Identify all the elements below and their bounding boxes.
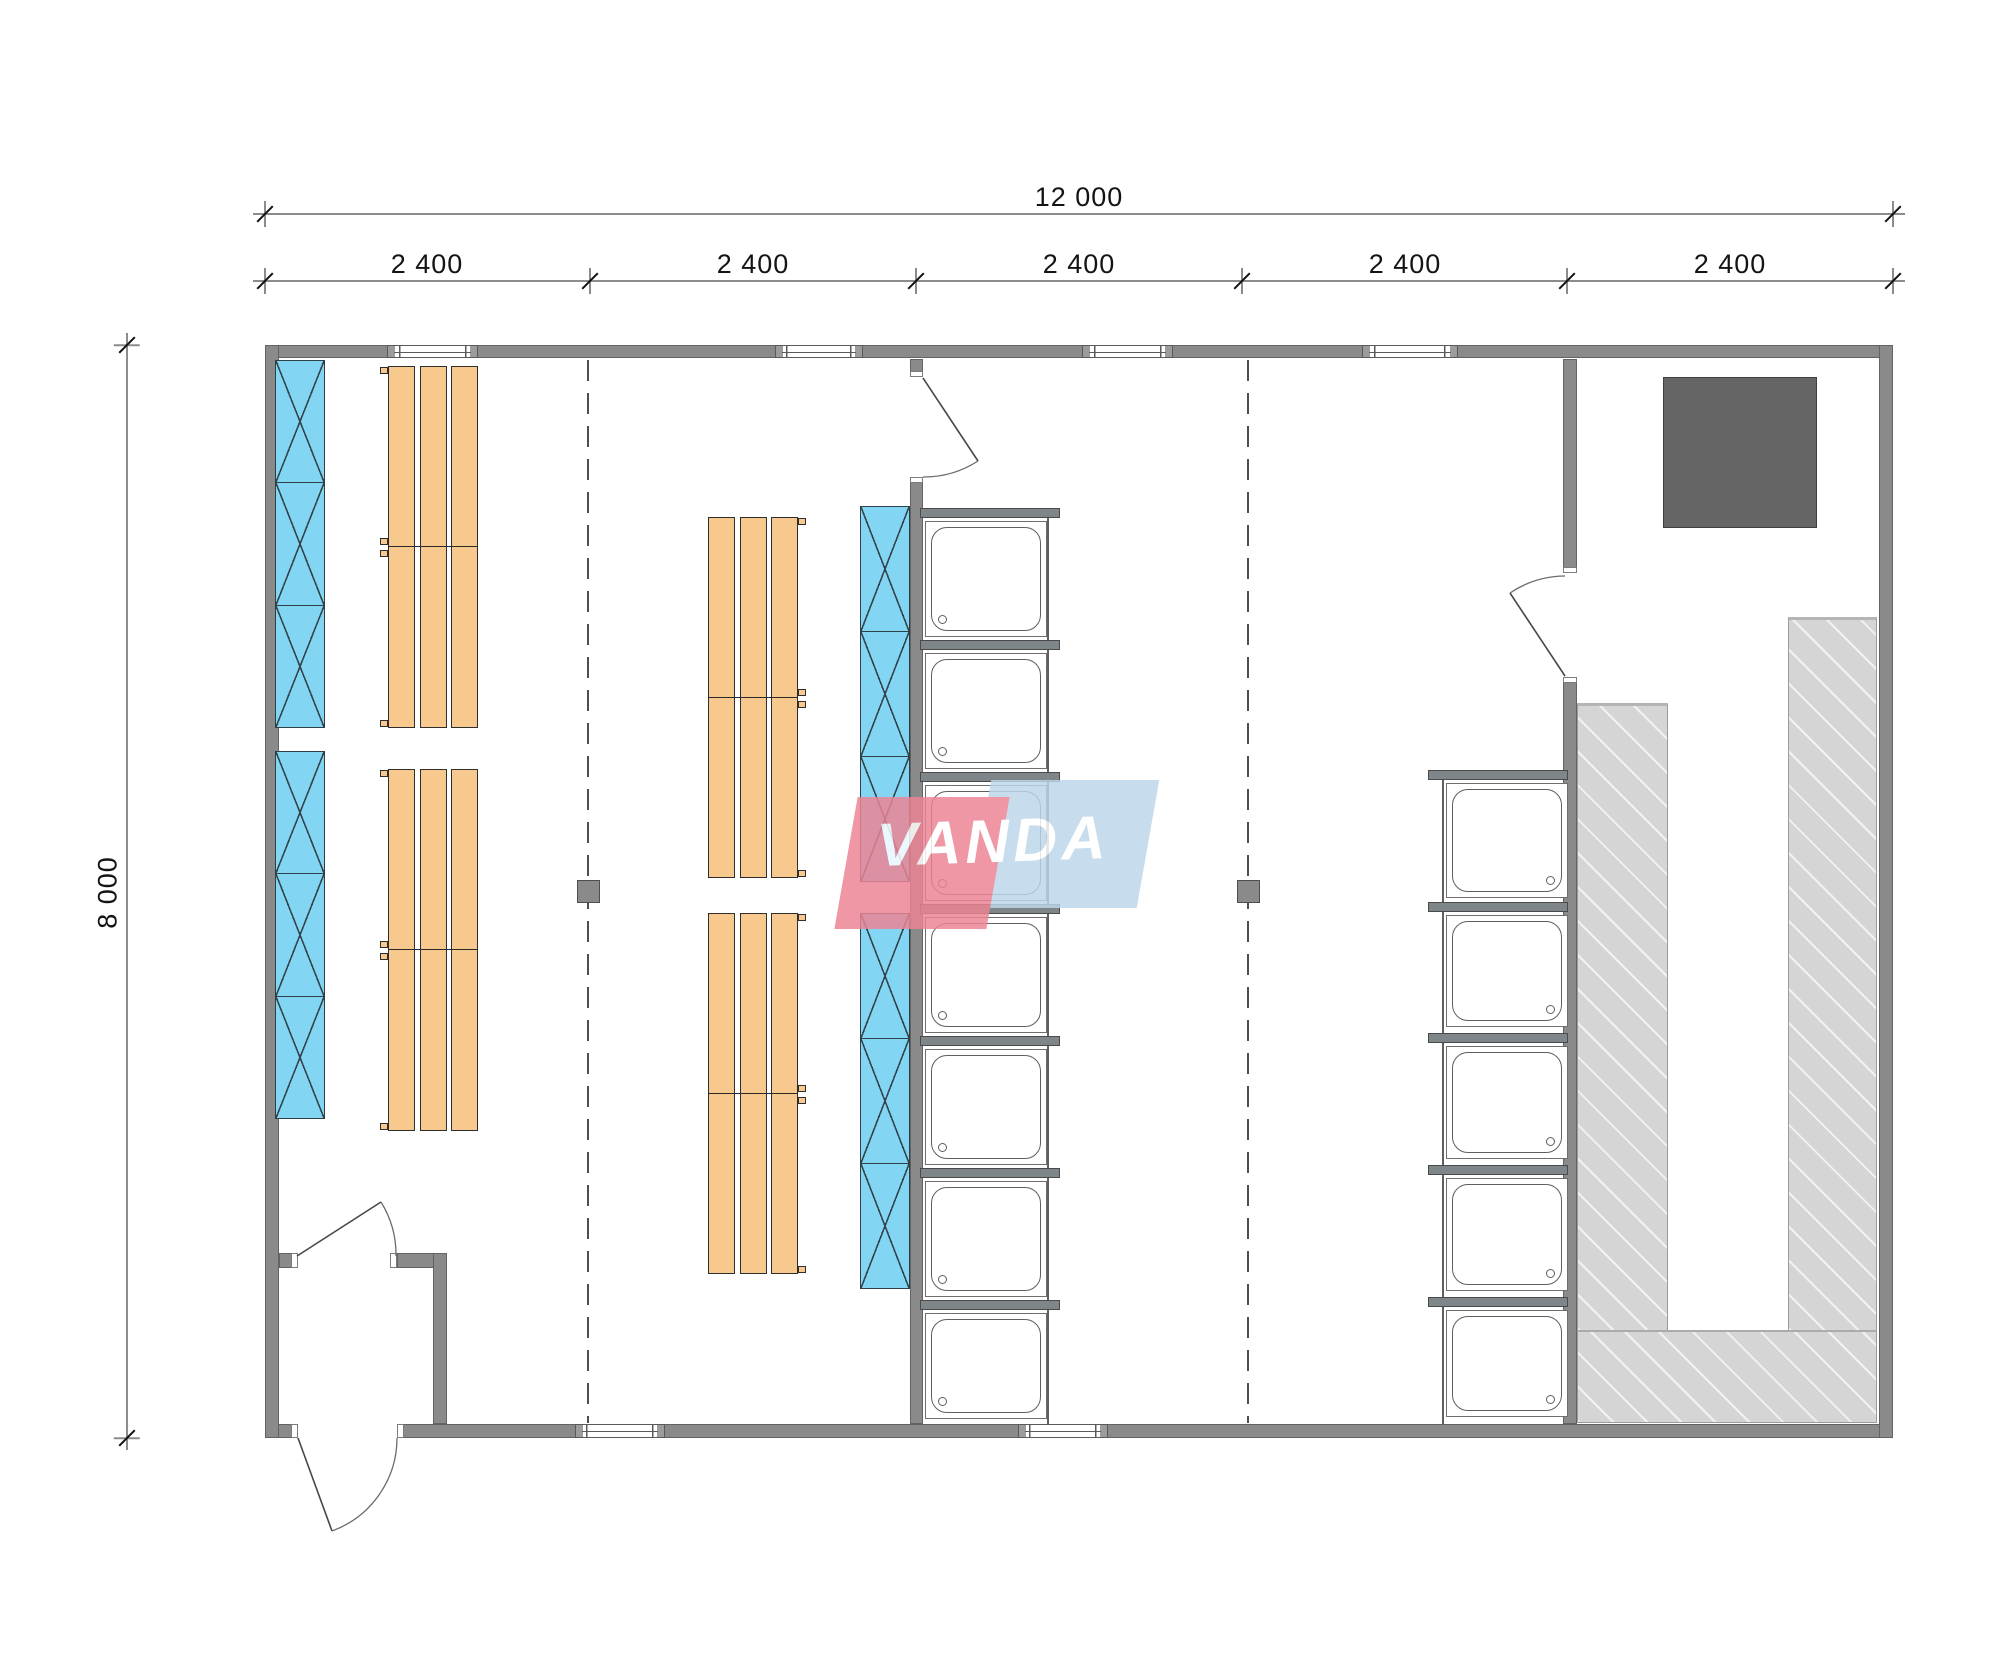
sauna-bench-left [1577, 703, 1668, 1331]
door-jamb [291, 1253, 298, 1268]
watermark-brand-text: VANDA [847, 801, 1139, 881]
shower-drain [938, 1143, 947, 1152]
shower-tray [1446, 1178, 1568, 1291]
shower-partition [1428, 902, 1568, 912]
shower-partition [920, 1168, 1060, 1178]
locker-section [860, 506, 910, 632]
dimension-tick [114, 332, 140, 358]
bench-plank [451, 769, 478, 1131]
door-leaf-vestibule [297, 1202, 381, 1256]
partition-wall-shower [910, 477, 923, 1424]
brand-watermark: VANDA [838, 770, 1150, 938]
bench-foot [798, 1085, 806, 1092]
vestibule-wall [433, 1253, 447, 1424]
entrance-opening [298, 1423, 397, 1439]
shower-partition [920, 1300, 1060, 1310]
door-jamb [291, 1424, 298, 1438]
window [775, 345, 863, 358]
bench-group [708, 517, 798, 878]
shower-tray [925, 1313, 1047, 1419]
sauna-stove [1663, 377, 1817, 528]
partition-wall-sauna [1563, 359, 1577, 573]
shower-tray [925, 1049, 1047, 1165]
bench-foot [380, 953, 388, 960]
bench-foot [798, 518, 806, 525]
locker-section [275, 751, 325, 874]
bench-joint [388, 949, 478, 950]
sauna-bench-right [1788, 617, 1877, 1331]
door-jamb [910, 371, 923, 377]
bench-foot [380, 941, 388, 948]
locker-section [275, 605, 325, 728]
sauna-bench-bottom [1577, 1330, 1877, 1423]
module-width-label-1: 2 400 [362, 249, 492, 280]
shower-partition [920, 1036, 1060, 1046]
shower-tray-basin [931, 923, 1041, 1027]
shower-tray [925, 653, 1047, 769]
dimension-tick [252, 268, 278, 294]
bench-plank [708, 517, 735, 878]
dimension-tick [114, 1425, 140, 1451]
overall-depth-label: 8 000 [93, 828, 124, 958]
shower-partition [920, 508, 1060, 518]
bench-foot [798, 689, 806, 696]
locker-section [860, 631, 910, 757]
dimension-tick [903, 268, 929, 294]
shower-tray-basin [1452, 1184, 1562, 1285]
door-jamb [1563, 567, 1577, 573]
bench-plank [740, 517, 767, 878]
shower-tray-basin [1452, 921, 1562, 1021]
shower-tray-basin [1452, 789, 1562, 892]
shower-drain [938, 1275, 947, 1284]
door-arc-vestibule [381, 1202, 396, 1256]
shower-tray [925, 1181, 1047, 1297]
bench-joint [388, 546, 478, 547]
locker-row-center-lower [860, 913, 910, 1289]
bench-joint [708, 697, 798, 698]
shower-drain [938, 747, 947, 756]
bench-plank [451, 366, 478, 728]
bench-plank [771, 913, 798, 1274]
locker-section [275, 996, 325, 1119]
bench-joint [708, 1093, 798, 1094]
bench-group [388, 769, 478, 1131]
shower-partition [1428, 1297, 1568, 1307]
locker-section [860, 1038, 910, 1164]
locker-row-left-upper [275, 360, 325, 728]
door-leaf-shower [923, 378, 978, 461]
door-leaf-sauna [1510, 593, 1565, 676]
bench-plank [771, 517, 798, 878]
dimension-line-overall-depth [126, 333, 128, 1450]
bench-plank [708, 913, 735, 1274]
window [1018, 1424, 1108, 1438]
module-width-label-5: 2 400 [1665, 249, 1795, 280]
bench-foot [380, 538, 388, 545]
door-jamb [1563, 677, 1577, 683]
bench-plank [388, 769, 415, 1131]
door-jamb [910, 477, 923, 483]
floor-plan-canvas: 12 000 2 400 2 400 2 400 2 400 2 400 8 0… [0, 0, 2000, 1669]
window [575, 1424, 665, 1438]
exterior-wall-top [265, 345, 1893, 358]
door-jamb [390, 1253, 397, 1268]
dimension-tick [1229, 268, 1255, 294]
shower-tray [1446, 1046, 1568, 1159]
bench-foot [798, 1266, 806, 1273]
overall-width-label: 12 000 [1014, 182, 1144, 213]
shower-partition [1428, 770, 1568, 780]
shower-drain [1546, 1269, 1555, 1278]
shower-tray-basin [931, 1055, 1041, 1159]
bench-foot [380, 550, 388, 557]
module-width-label-2: 2 400 [688, 249, 818, 280]
shower-tray-basin [1452, 1052, 1562, 1153]
bench-foot [798, 701, 806, 708]
door-arc-shower [923, 461, 978, 477]
door-jamb [397, 1424, 404, 1438]
bench-plank [740, 913, 767, 1274]
module-width-label-4: 2 400 [1340, 249, 1470, 280]
shower-drain [1546, 1005, 1555, 1014]
shower-tray [1446, 783, 1568, 898]
bench-foot [798, 914, 806, 921]
dimension-tick [1554, 268, 1580, 294]
bench-foot [380, 367, 388, 374]
dimension-tick [252, 201, 278, 227]
locker-section [275, 482, 325, 605]
bench-foot [380, 1123, 388, 1130]
bench-group [388, 366, 478, 728]
bench-foot [798, 1097, 806, 1104]
bench-plank [388, 366, 415, 728]
bench-foot [380, 770, 388, 777]
structural-column [577, 880, 600, 903]
shower-front-line [1442, 770, 1444, 1424]
structural-column [1237, 880, 1260, 903]
shower-drain [1546, 876, 1555, 885]
window [387, 345, 478, 358]
shower-partition [920, 640, 1060, 650]
door-arc-sauna [1510, 576, 1565, 593]
bench-plank [420, 366, 447, 728]
shower-drain [1546, 1395, 1555, 1404]
module-width-label-3: 2 400 [1014, 249, 1144, 280]
locker-row-left-lower [275, 751, 325, 1119]
exterior-wall-right [1879, 345, 1893, 1438]
bench-foot [380, 720, 388, 727]
shower-drain [938, 1397, 947, 1406]
bench-plank [420, 769, 447, 1131]
shower-tray-basin [931, 659, 1041, 763]
shower-drain [1546, 1137, 1555, 1146]
shower-tray [925, 521, 1047, 637]
bench-foot [798, 870, 806, 877]
shower-partition [1428, 1033, 1568, 1043]
dimension-line-modules [253, 280, 1905, 282]
window [1082, 345, 1173, 358]
locker-section [275, 873, 325, 996]
shower-partition [1428, 1165, 1568, 1175]
locker-section [860, 1163, 910, 1289]
window [1362, 345, 1458, 358]
shower-tray-basin [931, 1187, 1041, 1291]
shower-tray [1446, 915, 1568, 1027]
door-leaf-entrance [298, 1438, 332, 1531]
locker-section [275, 360, 325, 483]
dimension-tick [577, 268, 603, 294]
shower-tray-basin [931, 527, 1041, 631]
bench-group [708, 913, 798, 1274]
shower-tray-basin [931, 1319, 1041, 1413]
shower-tray [1446, 1310, 1568, 1417]
dimension-tick [1880, 201, 1906, 227]
dimension-tick [1880, 268, 1906, 294]
door-arc-entrance [332, 1438, 397, 1531]
shower-drain [938, 1011, 947, 1020]
shower-drain [938, 615, 947, 624]
dimension-line-overall-width [253, 213, 1905, 215]
